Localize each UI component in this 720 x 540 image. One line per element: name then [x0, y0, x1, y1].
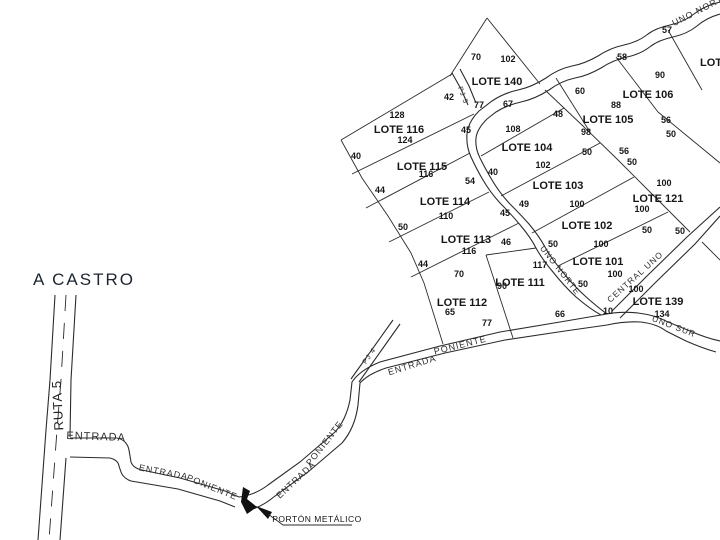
dimension-label: 48 [553, 109, 563, 119]
dimension-label: 98 [581, 127, 591, 137]
dimension-label: 90 [497, 281, 507, 291]
map-canvas: PORTÓN METÁLICO A CASTRO RUTA 5 LOTE LOT… [0, 0, 720, 540]
a-castro-label: A CASTRO [33, 270, 135, 289]
dimension-label: 100 [569, 199, 584, 209]
road-uno-norte-top-lower [487, 14, 720, 119]
dimension-label: 56 [619, 146, 629, 156]
dimension-label: 100 [593, 239, 608, 249]
dimension-label: 45 [500, 208, 510, 218]
dimension-label: 102 [500, 54, 515, 64]
plat-map-drawing: PORTÓN METÁLICO A CASTRO RUTA 5 LOTE LOT… [0, 0, 720, 540]
road-name-label: ENTRADA [66, 430, 126, 444]
gate-symbol [241, 487, 257, 514]
lot-140-outline [450, 18, 540, 84]
dimension-label: 50 [675, 226, 685, 236]
dimension-label: 44 [418, 259, 428, 269]
road-name-label: PJ 4 [362, 347, 378, 366]
dimension-label: 110 [439, 211, 454, 221]
dimension-label: 50 [642, 225, 652, 235]
road-name-label: PONIENTE [185, 472, 239, 502]
lot-label: LOTE 105 [583, 114, 634, 126]
dimension-label: 77 [474, 100, 484, 110]
dimension-label: 56 [661, 115, 671, 125]
dimension-label: 100 [656, 178, 671, 188]
dimension-label: 100 [634, 204, 649, 214]
dimension-label: 50 [582, 147, 592, 157]
lot-line-111-north [486, 248, 536, 255]
lot-label: LOTE 113 [441, 234, 491, 246]
dimension-label: 45 [461, 125, 471, 135]
lot-label: LOTE 106 [623, 89, 674, 101]
dimension-label: 42 [444, 92, 454, 102]
dimension-label: 70 [454, 269, 464, 279]
dimension-label: 77 [482, 318, 492, 328]
dimension-label: 50 [627, 157, 637, 167]
dimension-label: 116 [462, 246, 477, 256]
dimension-label: 10 [603, 306, 613, 316]
dimension-label: 60 [575, 86, 585, 96]
dimension-label: 90 [655, 70, 665, 80]
dimension-label: 124 [397, 135, 412, 145]
dimension-label: 58 [617, 52, 627, 62]
leader-arrow [256, 506, 272, 519]
road-name-label: PONIENTE [304, 419, 345, 468]
dimension-label: 116 [419, 169, 434, 179]
dimension-label: 40 [351, 151, 361, 161]
dimension-label: 50 [398, 222, 408, 232]
dimension-label: 50 [666, 129, 676, 139]
road-name-label: PJ 5 [456, 86, 469, 105]
lot-label: LOTE 101 [573, 256, 624, 268]
lot-label: LOTE 114 [420, 196, 471, 208]
dimension-label: 54 [465, 176, 475, 186]
dimension-label: 65 [445, 307, 455, 317]
road-name-label: ENTRADA [387, 353, 438, 377]
dimension-label: 128 [389, 110, 404, 120]
lot-line-139-east [702, 242, 720, 260]
lot-label: LOTE 104 [502, 142, 554, 154]
dimension-label: 117 [533, 260, 548, 270]
ruta5-label: RUTA 5 [49, 380, 67, 431]
lot-label: LOTE 139 [633, 296, 684, 308]
dimension-label: 88 [611, 100, 621, 110]
dimension-label: 49 [519, 199, 529, 209]
dimension-label: 70 [471, 52, 481, 62]
road-entrada-poniente-upper [239, 315, 601, 497]
lot-label: LOTE 103 [533, 180, 584, 192]
dimension-label: 100 [607, 269, 622, 279]
lot-line-106-east [668, 30, 702, 90]
road-name-label: UNO NORTE [670, 0, 720, 28]
porton-metalico-label: PORTÓN METÁLICO [272, 514, 362, 524]
dimension-label: 57 [662, 25, 672, 35]
dimension-label: 66 [555, 309, 565, 319]
lot-line-105-106 [616, 57, 658, 112]
dimension-label: 102 [535, 160, 550, 170]
lot-label: LOTE 102 [562, 220, 613, 232]
dimension-label: 67 [503, 99, 513, 109]
lot-label: LOTE 140 [472, 76, 523, 88]
dimension-label: 108 [505, 124, 520, 134]
road-name-label: ENTRADA [138, 462, 189, 481]
road-entrada-poniente-lower [249, 325, 607, 510]
dimension-label: 40 [488, 167, 498, 177]
generated-labels: LOTE 140LOTE 106LOTE 105LOTE 104LOTE 116… [66, 0, 720, 502]
dimension-label: 44 [375, 185, 385, 195]
partial-lot-label: LOTE [700, 57, 720, 69]
dimension-label: 46 [501, 237, 511, 247]
